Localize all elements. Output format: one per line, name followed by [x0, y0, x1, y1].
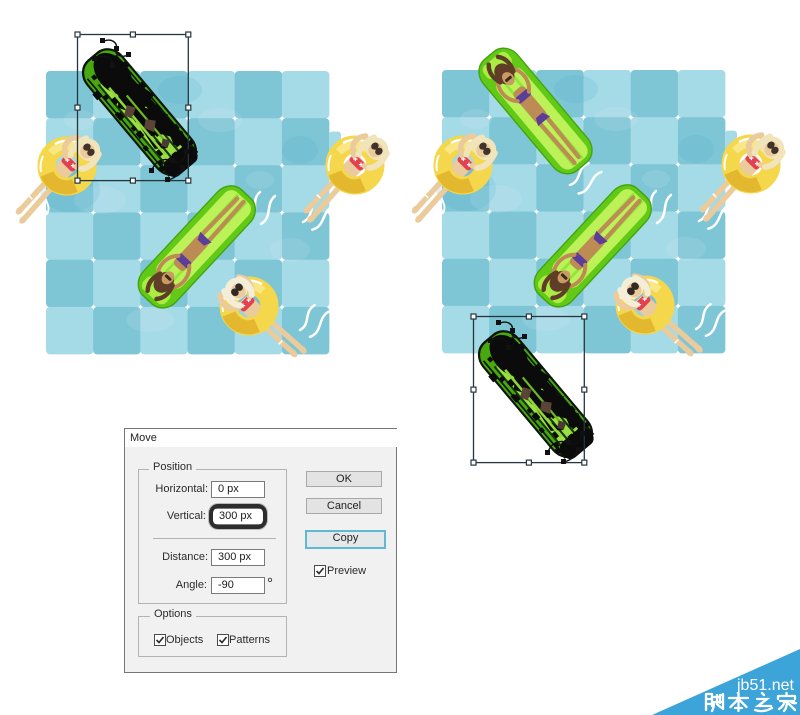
svg-text:jb51.net: jb51.net	[736, 677, 794, 694]
